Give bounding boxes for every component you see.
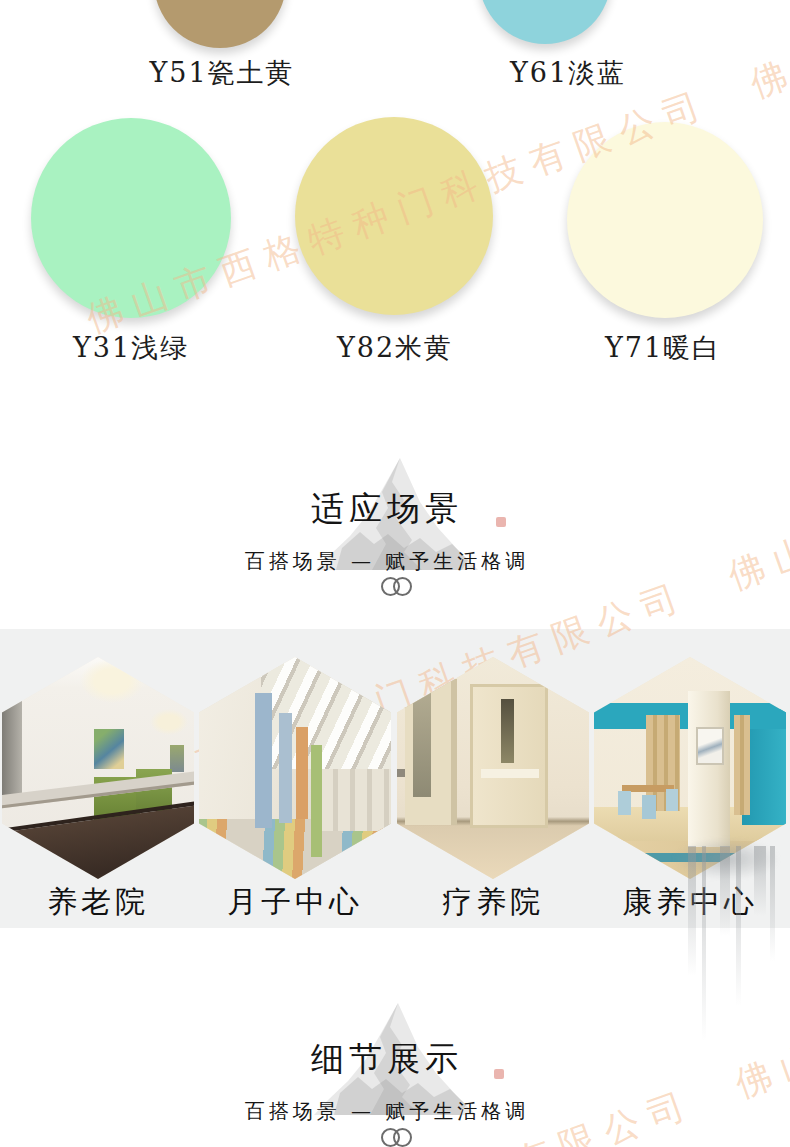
scene-label-sanatorium: 疗养院: [397, 882, 589, 923]
swatch-label-y51: Y51瓷土黄: [72, 55, 372, 91]
swatch-label-y82: Y82米黄: [245, 330, 545, 366]
scene-label-nursing-home: 养老院: [2, 882, 194, 923]
swatch-label-y31: Y31浅绿: [0, 330, 281, 366]
section-subtitle-scenes: 百搭场景 — 赋予生活格调: [0, 548, 782, 575]
linked-rings-icon: [381, 1128, 412, 1147]
color-swatch-y51: [154, 0, 286, 48]
ring-right-icon: [393, 577, 412, 596]
swatch-label-y71: Y71暖白: [513, 330, 790, 366]
section-title-scenes: 适应场景: [0, 487, 782, 532]
section-title-details: 细节展示: [0, 1037, 782, 1082]
section-subtitle-details: 百搭场景 — 赋予生活格调: [0, 1098, 782, 1125]
color-swatch-y82: [295, 117, 493, 315]
color-swatch-y61: [479, 0, 611, 44]
scene-label-confinement-center: 月子中心: [199, 882, 391, 923]
watermark-text-segment: 佛山市西格特种门科技有限公司: [745, 0, 790, 105]
linked-rings-icon: [381, 577, 412, 596]
page-root: 佛山市西格特种门科技有限公司佛山市西格特种门科技有限公司 佛山市西格特种门科技有…: [0, 0, 790, 1147]
scene-label-wellness-center: 康养中心: [594, 882, 786, 923]
swatch-label-y61: Y61淡蓝: [418, 55, 718, 91]
color-swatch-y71: [567, 122, 763, 318]
color-swatch-y31: [31, 118, 231, 318]
photo-handrail-layer: [2, 770, 194, 808]
seal-stamp-icon: [494, 1069, 504, 1079]
seal-stamp-icon: [496, 517, 506, 527]
ring-right-icon: [393, 1128, 412, 1147]
